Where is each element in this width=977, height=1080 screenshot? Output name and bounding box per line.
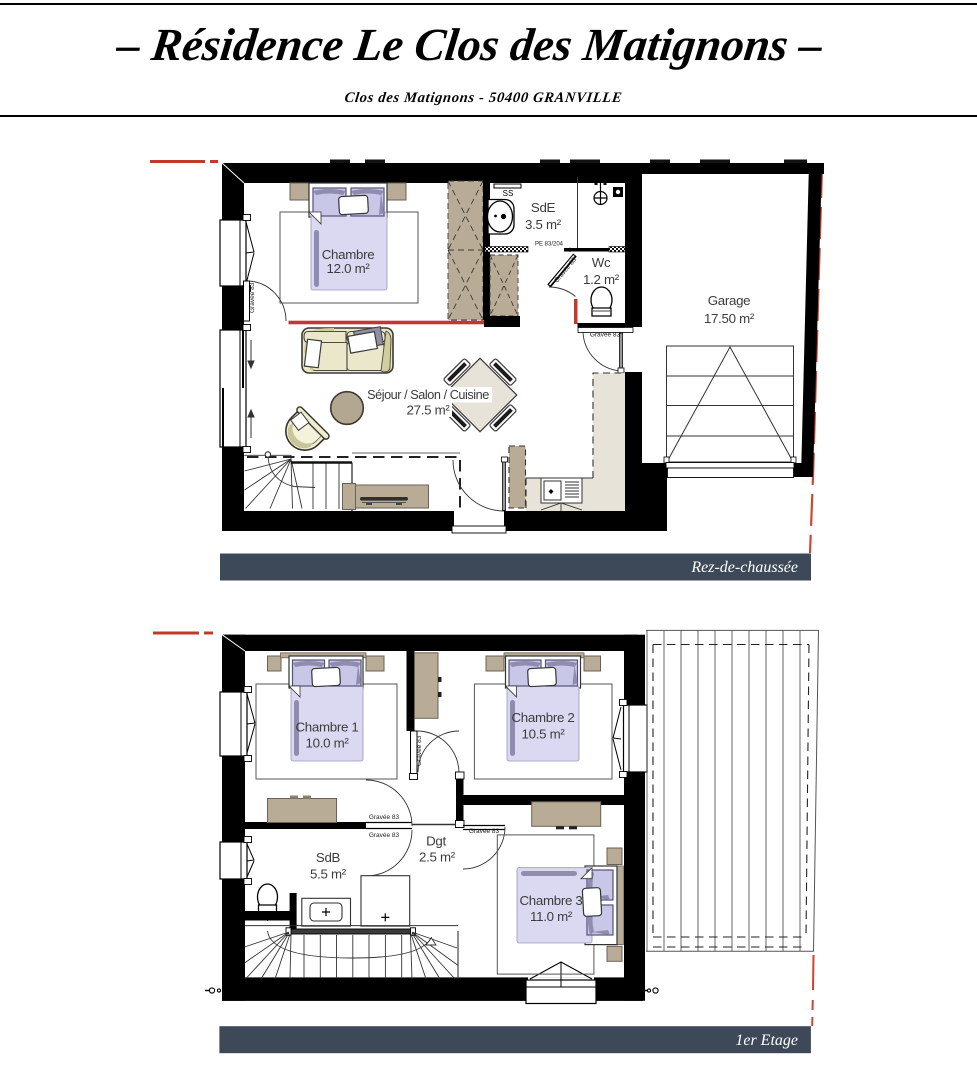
svg-text:Gravée 83: Gravée 83 (553, 256, 578, 284)
svg-text:2.5 m²: 2.5 m² (419, 850, 456, 865)
svg-text:Gravée 83: Gravée 83 (590, 332, 621, 339)
svg-text:10.0 m²: 10.0 m² (306, 736, 350, 751)
svg-text:27.5 m²: 27.5 m² (407, 403, 451, 418)
svg-text:Chambre 3: Chambre 3 (519, 893, 582, 908)
svg-text:17.50 m²: 17.50 m² (704, 311, 755, 326)
svg-text:Gravée 83: Gravée 83 (249, 282, 256, 313)
svg-text:SS: SS (503, 189, 514, 198)
svg-text:SdB: SdB (316, 850, 341, 865)
svg-text:Rez-de-chaussée: Rez-de-chaussée (690, 559, 798, 576)
svg-text:Séjour / Salon / Cuisine: Séjour / Salon / Cuisine (367, 388, 489, 402)
svg-text:Gravée 83: Gravée 83 (469, 828, 500, 835)
svg-text:PE 83/204: PE 83/204 (535, 242, 564, 248)
svg-text:– Résidence Le Clos des Matign: – Résidence Le Clos des Matignons – (113, 19, 825, 70)
svg-text:12.0 m²: 12.0 m² (327, 261, 371, 276)
svg-text:Clos des Matignons - 50400 GRA: Clos des Matignons - 50400 GRANVILLE (344, 90, 624, 106)
svg-text:Gravée 83: Gravée 83 (369, 832, 400, 839)
svg-text:3.5 m²: 3.5 m² (525, 217, 562, 232)
svg-text:11.0 m²: 11.0 m² (530, 909, 573, 924)
svg-text:10.5 m²: 10.5 m² (522, 726, 566, 741)
svg-text:SdE: SdE (531, 200, 556, 215)
svg-text:Wc: Wc (592, 255, 611, 270)
svg-text:1er Etage: 1er Etage (735, 1032, 798, 1049)
svg-text:1.2 m²: 1.2 m² (583, 272, 620, 287)
svg-text:Chambre 1: Chambre 1 (295, 720, 358, 735)
svg-text:Chambre: Chambre (322, 247, 375, 262)
svg-text:Gravée 83: Gravée 83 (369, 814, 400, 821)
svg-text:5.5 m²: 5.5 m² (310, 867, 347, 882)
svg-text:Garage: Garage (708, 293, 751, 308)
svg-text:Dgt: Dgt (426, 834, 446, 849)
svg-text:Chambre 2: Chambre 2 (511, 710, 574, 725)
